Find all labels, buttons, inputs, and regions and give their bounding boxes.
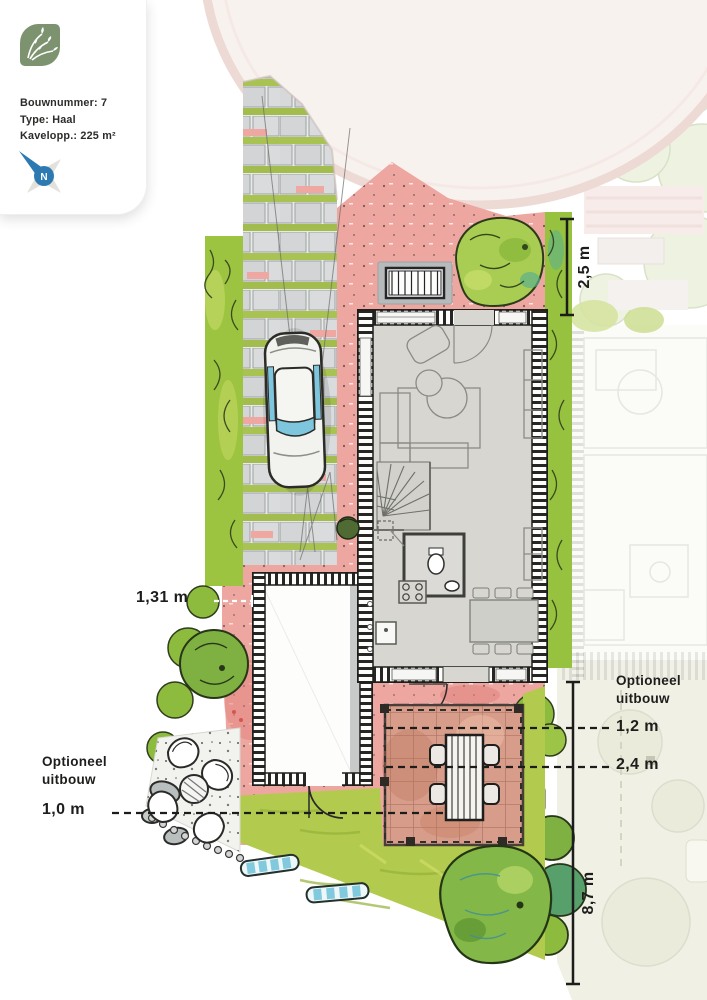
window <box>496 669 526 680</box>
front-door <box>454 310 494 325</box>
grass-logo-icon <box>20 24 60 66</box>
garden-tree <box>440 846 551 963</box>
front-tree <box>456 218 543 306</box>
spiral-stairs <box>377 462 430 540</box>
plot-info: Bouwnummer: 7 Type: Haal Kavelopp.: 225 … <box>20 95 116 145</box>
dim-label-extension-2: 2,4 m <box>616 756 659 774</box>
compass-north-label: N <box>40 172 47 183</box>
compass-icon: N <box>12 144 76 208</box>
type-line: Type: Haal <box>20 112 116 129</box>
bouwnummer-line: Bouwnummer: 7 <box>20 95 116 112</box>
optional-extension-right-label: Optioneel uitbouw <box>616 672 698 707</box>
site-plan-page: 2,5 m 1,31 m Optioneel uitbouw 1,2 m 2,4… <box>0 0 707 1000</box>
dim-label-extension-left: 1,0 m <box>42 801 85 819</box>
shed <box>253 573 372 818</box>
side-shrub <box>337 517 359 539</box>
info-card: Bouwnummer: 7 Type: Haal Kavelopp.: 225 … <box>0 0 147 215</box>
dim-label-garden-depth: 8,7 m <box>580 863 598 923</box>
terrace-pergola <box>380 704 523 846</box>
garden-table <box>180 775 208 803</box>
dim-label-extension-1: 1,2 m <box>616 718 659 736</box>
window <box>499 312 526 323</box>
dim-label-side-distance: 1,31 m <box>136 589 188 607</box>
compass: N <box>12 144 76 213</box>
back-door <box>443 667 489 682</box>
optional-extension-left-label: Optioneel uitbouw <box>42 753 122 788</box>
dim-label-front-width: 2,5 m <box>576 237 594 297</box>
entrance-bench <box>378 262 452 304</box>
window <box>360 338 371 396</box>
dining-set <box>470 588 538 654</box>
kavelopp-line: Kavelopp.: 225 m² <box>20 128 116 145</box>
brand-logo <box>20 24 60 66</box>
gravel-terrace <box>142 728 244 862</box>
house <box>358 310 547 722</box>
window <box>392 669 436 680</box>
